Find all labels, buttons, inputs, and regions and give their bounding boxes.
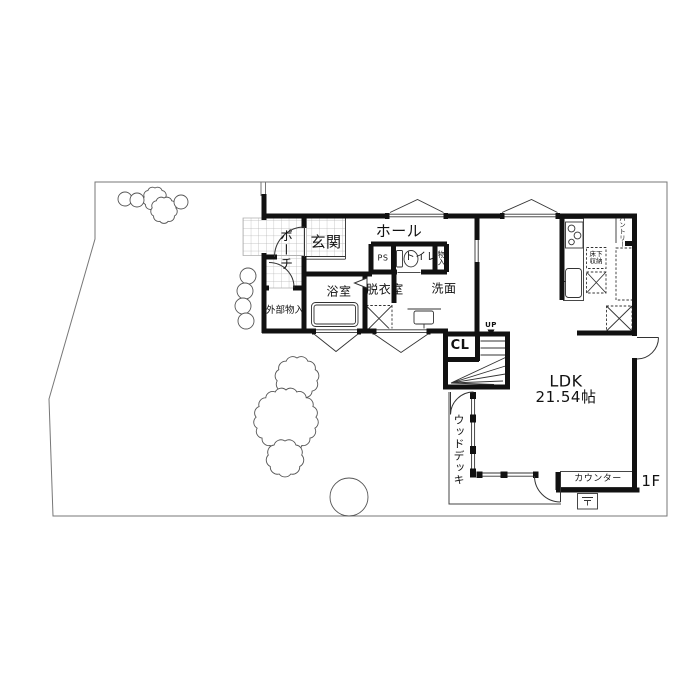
floor-badge: 1F — [641, 473, 660, 489]
floorplan-1f: ポーチ 玄関 ホール PS トイレ 物入 浴室 脱衣室 洗面 外部物入 CL U… — [0, 0, 700, 700]
label-washroom: 洗面 — [431, 283, 456, 296]
label-up: UP — [485, 322, 497, 330]
tree-icon — [238, 313, 254, 329]
cupboard-box — [616, 248, 633, 300]
label-toilet: トイレ — [405, 251, 438, 262]
label-exterior-storage: 外部物入 — [266, 306, 304, 316]
tree-icon — [130, 193, 144, 207]
site-boundary — [49, 182, 667, 516]
label-ldk-area: 21.54帖 — [536, 389, 597, 405]
floorplan-canvas — [0, 0, 700, 700]
tree-icon — [330, 478, 368, 516]
kitchen-rear-door — [637, 338, 659, 360]
label-entrance: 玄関 — [310, 234, 341, 250]
tree-icon — [237, 283, 253, 299]
label-bathroom: 浴室 — [326, 286, 351, 299]
label-porch: ポーチ — [277, 229, 291, 271]
label-closet: CL — [451, 339, 470, 353]
opening-toilet-door — [398, 269, 421, 276]
label-storage-small: 物入 — [437, 251, 445, 266]
label-pantry: パントリー — [617, 215, 624, 248]
windows — [312, 200, 560, 479]
bathtub-icon — [312, 303, 359, 327]
window-top-1 — [385, 213, 448, 220]
fridge-space-box — [607, 306, 633, 331]
tree-icon — [151, 197, 177, 223]
washing-machine-icon — [366, 306, 392, 332]
label-hall: ホール — [376, 223, 423, 239]
bath-folding-door — [355, 278, 368, 288]
outdoor-faucet-icon — [578, 494, 598, 510]
window-wall-south — [477, 472, 539, 479]
wood-deck — [449, 392, 561, 504]
label-ps: PS — [378, 255, 389, 264]
label-underfloor-storage: 床下収納 — [588, 251, 604, 265]
opening-hall-ldk — [474, 240, 481, 262]
tree-icon — [240, 268, 256, 284]
kitchen-service-box — [587, 272, 607, 293]
tree-icon — [235, 298, 251, 314]
label-dressing-room: 脱衣室 — [366, 284, 404, 297]
window-wall-west — [470, 392, 476, 478]
tree-icon — [266, 440, 303, 477]
window-top-2 — [500, 213, 560, 220]
label-wood-deck: ウッドデッキ — [452, 414, 464, 486]
tree-icon — [174, 195, 188, 209]
washbasin-icon — [408, 309, 442, 330]
label-counter: カウンター — [574, 475, 622, 485]
stove-icon — [566, 222, 584, 248]
